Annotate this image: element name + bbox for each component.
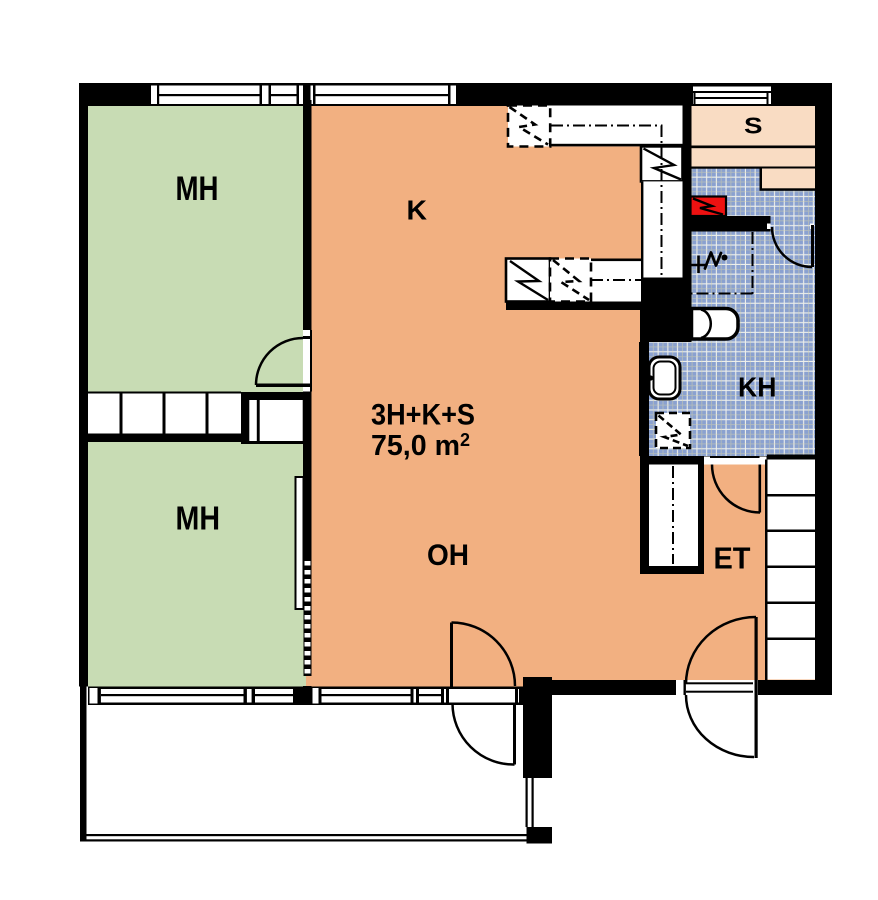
svg-text:OH: OH [427, 539, 469, 572]
svg-text:KH: KH [738, 372, 777, 403]
svg-text:K: K [407, 195, 428, 226]
svg-text:MH: MH [176, 170, 219, 208]
svg-text:ET: ET [714, 542, 751, 576]
svg-text:3H+K+S: 3H+K+S [371, 399, 475, 432]
svg-text:75,0 m2: 75,0 m2 [371, 430, 470, 462]
svg-text:MH: MH [176, 500, 221, 537]
svg-text:S: S [744, 113, 763, 139]
